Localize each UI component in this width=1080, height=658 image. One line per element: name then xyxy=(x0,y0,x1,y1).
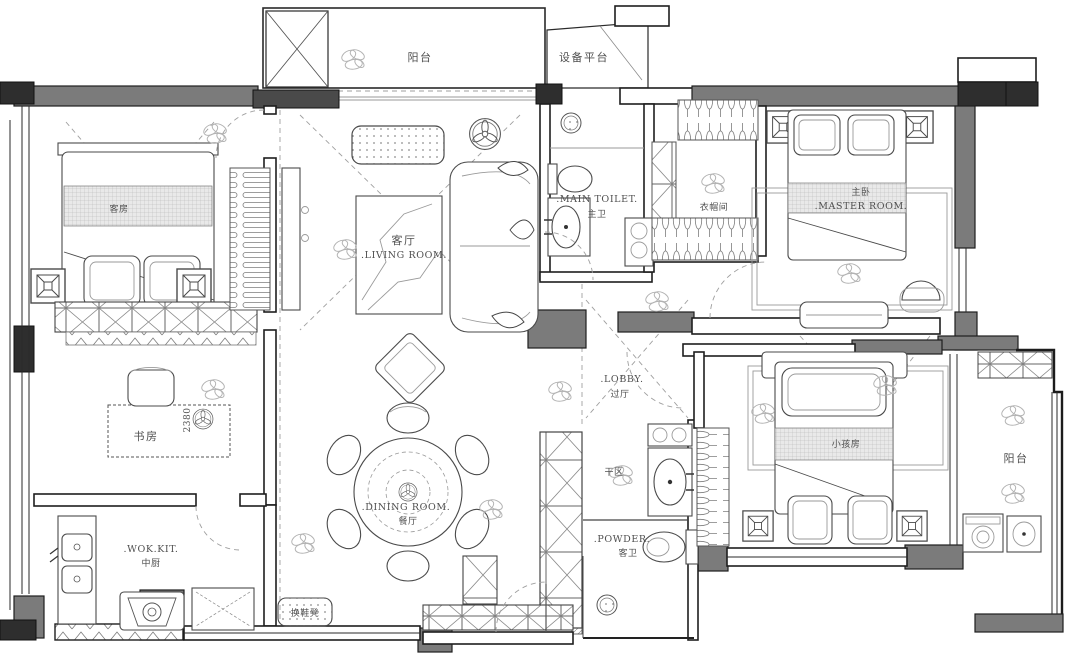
label-powder-en: .POWDER. xyxy=(594,534,651,545)
cloakroom xyxy=(652,100,758,260)
label-cloakroom: 衣帽间 xyxy=(700,201,729,213)
label-wok-cn: 中厨 xyxy=(141,557,160,569)
plant-icon xyxy=(200,378,226,401)
downlight-symbol xyxy=(177,269,211,303)
kitchen-sink xyxy=(62,566,92,593)
label-lobby-cn: 过厅 xyxy=(610,388,629,400)
label-master-cn: 主卧 xyxy=(851,186,870,198)
label-lobby-en: .LOBBY. xyxy=(600,374,643,385)
label-shoe-bench: 换鞋凳 xyxy=(291,607,320,619)
study xyxy=(108,367,230,457)
fan-icon xyxy=(470,119,501,150)
lounge-chair xyxy=(373,331,447,405)
downlight-symbol xyxy=(31,269,65,303)
balcony-cabinet xyxy=(978,352,1052,378)
label-powder-cn: 客卫 xyxy=(618,547,637,559)
plant-icon xyxy=(644,290,670,313)
shower-drain-icon xyxy=(561,113,581,133)
label-study: 书房 xyxy=(134,430,159,443)
label-living-cn: 客厅 xyxy=(392,233,417,247)
label-living-en: .LIVING ROOM. xyxy=(361,250,447,261)
dry-top-cabinet xyxy=(648,424,692,446)
entry-cabinet xyxy=(463,556,497,604)
label-dining-en: .DINING ROOM. xyxy=(362,502,451,513)
plant-icon xyxy=(332,238,358,261)
label-main-toilet-en: .MAIN TOILET. xyxy=(556,194,638,205)
plant-icon xyxy=(1000,404,1026,427)
plant-icon xyxy=(340,48,366,71)
floor-plan-svg: 阳台 设备平台 客房 客厅 .LIVING ROOM. .MAIN TOILET… xyxy=(0,0,1080,658)
plant-icon xyxy=(1000,482,1026,505)
guest-room xyxy=(31,110,270,345)
kids-closet xyxy=(697,428,729,546)
label-kids-room: 小孩房 xyxy=(832,438,861,450)
label-dining-cn: 餐厅 xyxy=(398,515,417,527)
label-balcony-right: 阳台 xyxy=(1004,451,1029,465)
plant-icon xyxy=(836,262,862,285)
label-master-en: .MASTER ROOM. xyxy=(815,201,908,212)
label-main-toilet-cn: 主卫 xyxy=(587,208,606,220)
kitchen-sink xyxy=(62,534,92,561)
shower-drain-icon xyxy=(597,595,617,615)
guest-bed-band xyxy=(64,186,212,226)
fan-icon xyxy=(193,409,213,429)
study-desk xyxy=(108,405,230,457)
label-wok-en: .WOK.KIT. xyxy=(124,544,179,555)
guest-wardrobe xyxy=(55,302,257,332)
dry-powder xyxy=(540,424,698,628)
plant-icon xyxy=(202,122,228,145)
plant-icon xyxy=(700,172,726,195)
plant-icon xyxy=(547,380,573,403)
study-chair xyxy=(128,370,174,406)
entry-low-cabinet xyxy=(423,605,573,630)
sofa xyxy=(450,162,538,332)
compass-icon xyxy=(399,483,417,501)
kids-pillow xyxy=(782,368,886,416)
hanger-rack xyxy=(678,100,758,140)
balcony-top xyxy=(263,8,545,100)
label-balcony-top: 阳台 xyxy=(408,50,433,64)
round-chair xyxy=(902,281,940,300)
plant-icon xyxy=(750,402,776,425)
tv-cabinet xyxy=(282,168,300,310)
dining-room xyxy=(278,403,573,632)
living-room xyxy=(282,119,538,405)
label-guest-room: 客房 xyxy=(109,203,128,215)
guest-closet xyxy=(230,168,270,310)
label-study-dim: 2380 xyxy=(183,408,193,433)
toilet xyxy=(558,166,592,192)
label-equipment: 设备平台 xyxy=(559,50,609,64)
downlight-symbol xyxy=(743,511,773,541)
label-dry-area: 干区 xyxy=(604,467,623,478)
tv-bench xyxy=(352,126,444,164)
hanger-rack xyxy=(652,218,758,260)
cloak-cabinet xyxy=(652,142,676,218)
downlight-symbol xyxy=(897,511,927,541)
plant-icon xyxy=(290,532,316,555)
floor-plan-canvas: 阳台 设备平台 客房 客厅 .LIVING ROOM. .MAIN TOILET… xyxy=(0,0,1080,658)
washing-machine xyxy=(963,514,1003,552)
